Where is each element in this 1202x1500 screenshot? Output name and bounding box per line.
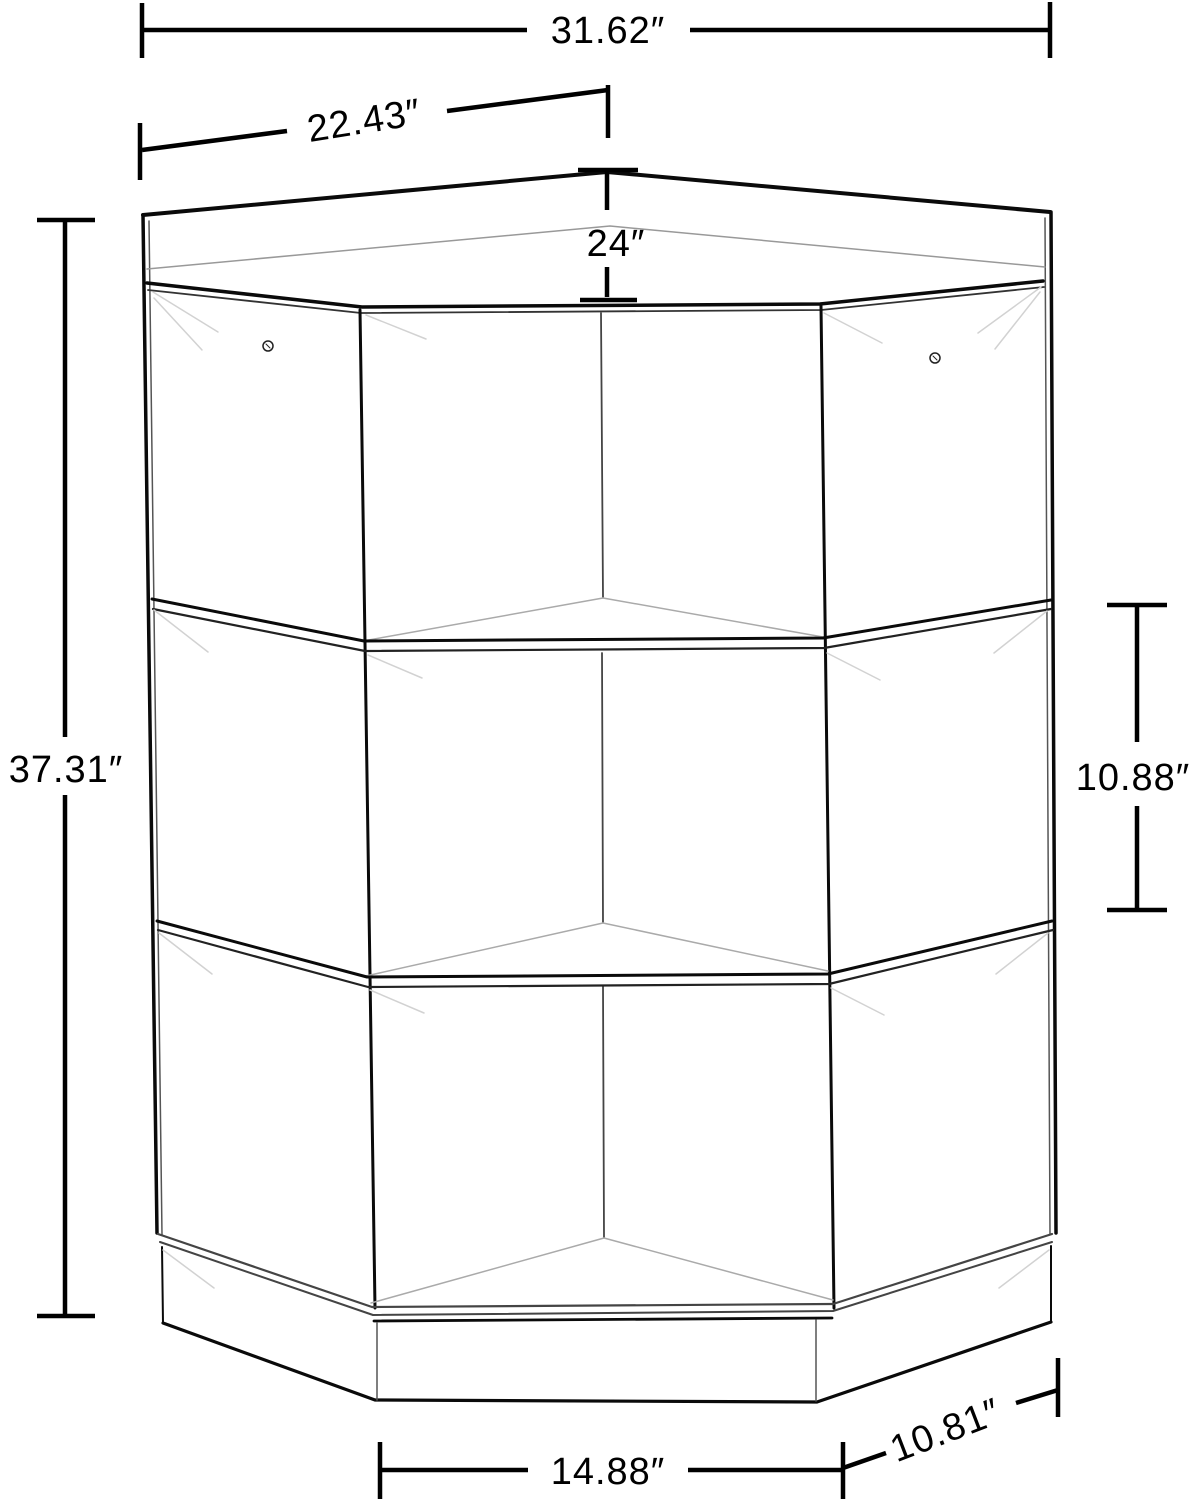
dimension-label-side-depth: 10.81″ xyxy=(885,1391,1007,1471)
floor-front-edge-center xyxy=(374,1318,832,1321)
floor-back-corner-lines xyxy=(371,1238,833,1303)
dimension-label-top-depth: 24″ xyxy=(587,223,646,265)
dimension-label-overall-width: 31.62″ xyxy=(551,10,666,52)
tier2-shelf xyxy=(157,921,1053,987)
right-partition-edge xyxy=(821,306,834,1308)
cabinet-top-back-edge xyxy=(143,172,1050,215)
center-corner-lines xyxy=(601,313,604,1237)
plinth-bottom-edge xyxy=(163,1322,1051,1402)
tier1-shelf xyxy=(152,598,1051,651)
bottom-floor xyxy=(158,1234,1052,1321)
dimension-label-front-width: 14.88″ xyxy=(551,1451,666,1493)
floor-front-edge-lower xyxy=(160,1242,1052,1315)
cabinet-right-outer-edge xyxy=(1051,212,1056,1233)
plinth-base xyxy=(162,1246,1051,1402)
dimension-labels: 31.62″ 22.43″ 24″ 37.31″ 10.88″ 14.88″ 1… xyxy=(9,10,1191,1493)
tier1-shelf-front-edge-lower xyxy=(153,609,1051,651)
tier2-shelf-back-corner-lines xyxy=(366,923,828,976)
floor-front-edge xyxy=(158,1234,1052,1307)
top-surface-front-edge xyxy=(147,281,1043,307)
tier2-shelf-front-edge xyxy=(157,921,1052,977)
tier1-shelf-back-corner-lines xyxy=(363,598,823,641)
cabinet-right-outer-edge-inner xyxy=(1045,218,1050,1234)
cabinet-outline xyxy=(143,172,1056,1402)
corner-cabinet-line-drawing: 31.62″ 22.43″ 24″ 37.31″ 10.88″ 14.88″ 1… xyxy=(0,0,1202,1500)
dimension-diagram-page: 31.62″ 22.43″ 24″ 37.31″ 10.88″ 14.88″ 1… xyxy=(0,0,1202,1500)
dimension-label-cubby-height: 10.88″ xyxy=(1076,757,1191,799)
left-partition-edge xyxy=(360,310,375,1308)
plinth-left-edge xyxy=(162,1247,163,1323)
dimension-label-left-section-width: 22.43″ xyxy=(304,91,424,150)
dimension-label-overall-height: 37.31″ xyxy=(9,749,124,791)
